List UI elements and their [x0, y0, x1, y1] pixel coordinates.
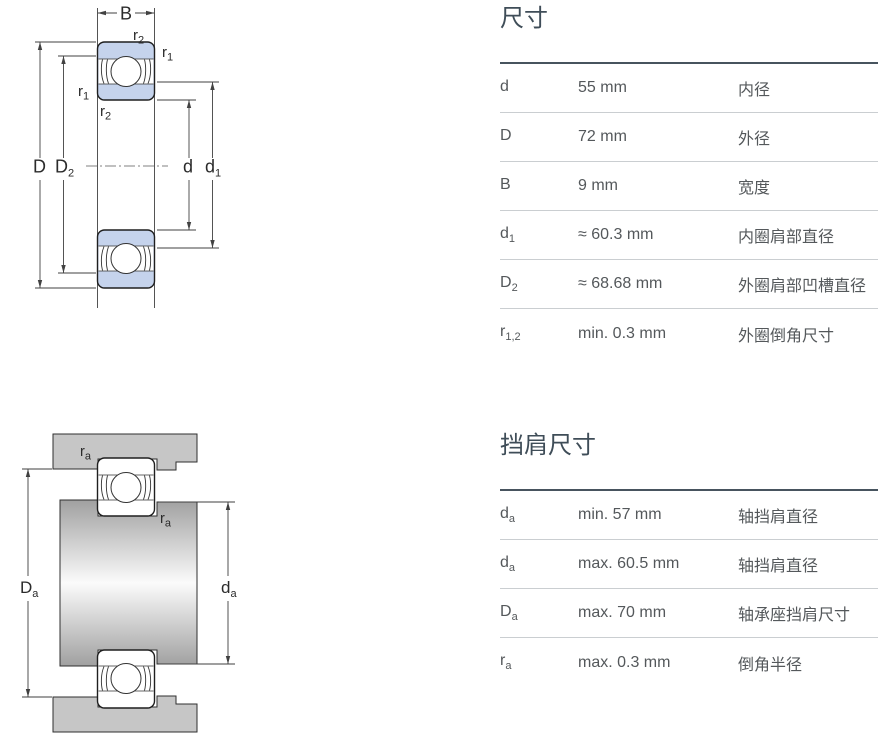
symbol-cell: d	[500, 78, 578, 98]
value-cell: ≈ 60.3 mm	[578, 226, 738, 244]
dim-label-r1-left: r1	[78, 83, 89, 103]
dimensions-table: d 55 mm 内径 D 72 mm 外径 B 9 mm 宽度 d1 ≈ 60.…	[500, 62, 878, 358]
value-cell: 72 mm	[578, 128, 738, 146]
description-cell: 轴承座挡肩尺寸	[738, 601, 878, 625]
dim-label-r2-bottom: r2	[100, 103, 111, 123]
symbol-cell: B	[500, 176, 578, 196]
dim-label-D: D	[33, 157, 46, 177]
dim-label-d: d	[183, 157, 193, 177]
abutment-section: 挡肩尺寸 da min. 57 mm 轴挡肩直径 da max. 60.5 mm…	[500, 431, 878, 687]
symbol-cell: da	[500, 554, 578, 574]
ball	[111, 57, 141, 87]
description-cell: 外圈肩部凹槽直径	[738, 272, 878, 296]
symbol-cell: r1,2	[500, 323, 578, 343]
abutment-table: da min. 57 mm 轴挡肩直径 da max. 60.5 mm 轴挡肩直…	[500, 489, 878, 687]
table-row: Da max. 70 mm 轴承座挡肩尺寸	[500, 589, 878, 638]
description-cell: 内径	[738, 76, 878, 100]
bearing-dimensions-diagram: B r2 r1 r1 r2 D D2 d d1	[0, 0, 260, 335]
value-cell: 9 mm	[578, 177, 738, 195]
symbol-cell: ra	[500, 652, 578, 672]
ball	[111, 473, 141, 503]
table-row: r1,2 min. 0.3 mm 外圈倒角尺寸	[500, 309, 878, 358]
table-row: B 9 mm 宽度	[500, 162, 878, 211]
section-title-dimensions: 尺寸	[500, 4, 878, 34]
dimensions-section: 尺寸 d 55 mm 内径 D 72 mm 外径 B 9 mm 宽度 d1 ≈ …	[500, 4, 878, 358]
section-title-abutment: 挡肩尺寸	[500, 431, 878, 461]
dim-label-D2: D2	[55, 157, 74, 180]
value-cell: max. 0.3 mm	[578, 654, 738, 672]
description-cell: 外圈倒角尺寸	[738, 322, 878, 346]
symbol-cell: d1	[500, 225, 578, 245]
description-cell: 外径	[738, 125, 878, 149]
dim-label-Da: Da	[20, 578, 39, 600]
description-cell: 轴挡肩直径	[738, 503, 878, 527]
dim-label-da: da	[221, 578, 237, 600]
symbol-cell: Da	[500, 603, 578, 623]
dim-label-r1-right: r1	[162, 44, 173, 64]
table-row: da min. 57 mm 轴挡肩直径	[500, 491, 878, 540]
value-cell: min. 57 mm	[578, 506, 738, 524]
bearing-upper-section	[98, 42, 155, 100]
symbol-cell: da	[500, 505, 578, 525]
bearing-lower-section	[98, 230, 155, 288]
symbol-cell: D	[500, 127, 578, 147]
table-row: D 72 mm 外径	[500, 113, 878, 162]
ball	[111, 664, 141, 694]
dim-label-r2-top: r2	[133, 27, 144, 47]
value-cell: 55 mm	[578, 79, 738, 97]
table-row: D2 ≈ 68.68 mm 外圈肩部凹槽直径	[500, 260, 878, 309]
description-cell: 轴挡肩直径	[738, 552, 878, 576]
value-cell: ≈ 68.68 mm	[578, 275, 738, 293]
ball	[111, 244, 141, 274]
description-cell: 宽度	[738, 174, 878, 198]
dim-label-B: B	[120, 4, 132, 24]
description-cell: 倒角半径	[738, 651, 878, 675]
bearing-lower-section	[98, 650, 155, 708]
description-cell: 内圈肩部直径	[738, 223, 878, 247]
table-row: d1 ≈ 60.3 mm 内圈肩部直径	[500, 211, 878, 260]
bearing-abutment-diagram: ra ra Da da	[0, 425, 260, 737]
dim-label-d1: d1	[205, 157, 221, 180]
table-row: da max. 60.5 mm 轴挡肩直径	[500, 540, 878, 589]
shaft	[60, 500, 197, 666]
value-cell: max. 60.5 mm	[578, 555, 738, 573]
bearing-upper-section	[98, 458, 155, 516]
symbol-cell: D2	[500, 274, 578, 294]
table-row: d 55 mm 内径	[500, 64, 878, 113]
value-cell: min. 0.3 mm	[578, 325, 738, 343]
table-row: ra max. 0.3 mm 倒角半径	[500, 638, 878, 687]
page: B r2 r1 r1 r2 D D2 d d1	[0, 0, 878, 737]
value-cell: max. 70 mm	[578, 604, 738, 622]
